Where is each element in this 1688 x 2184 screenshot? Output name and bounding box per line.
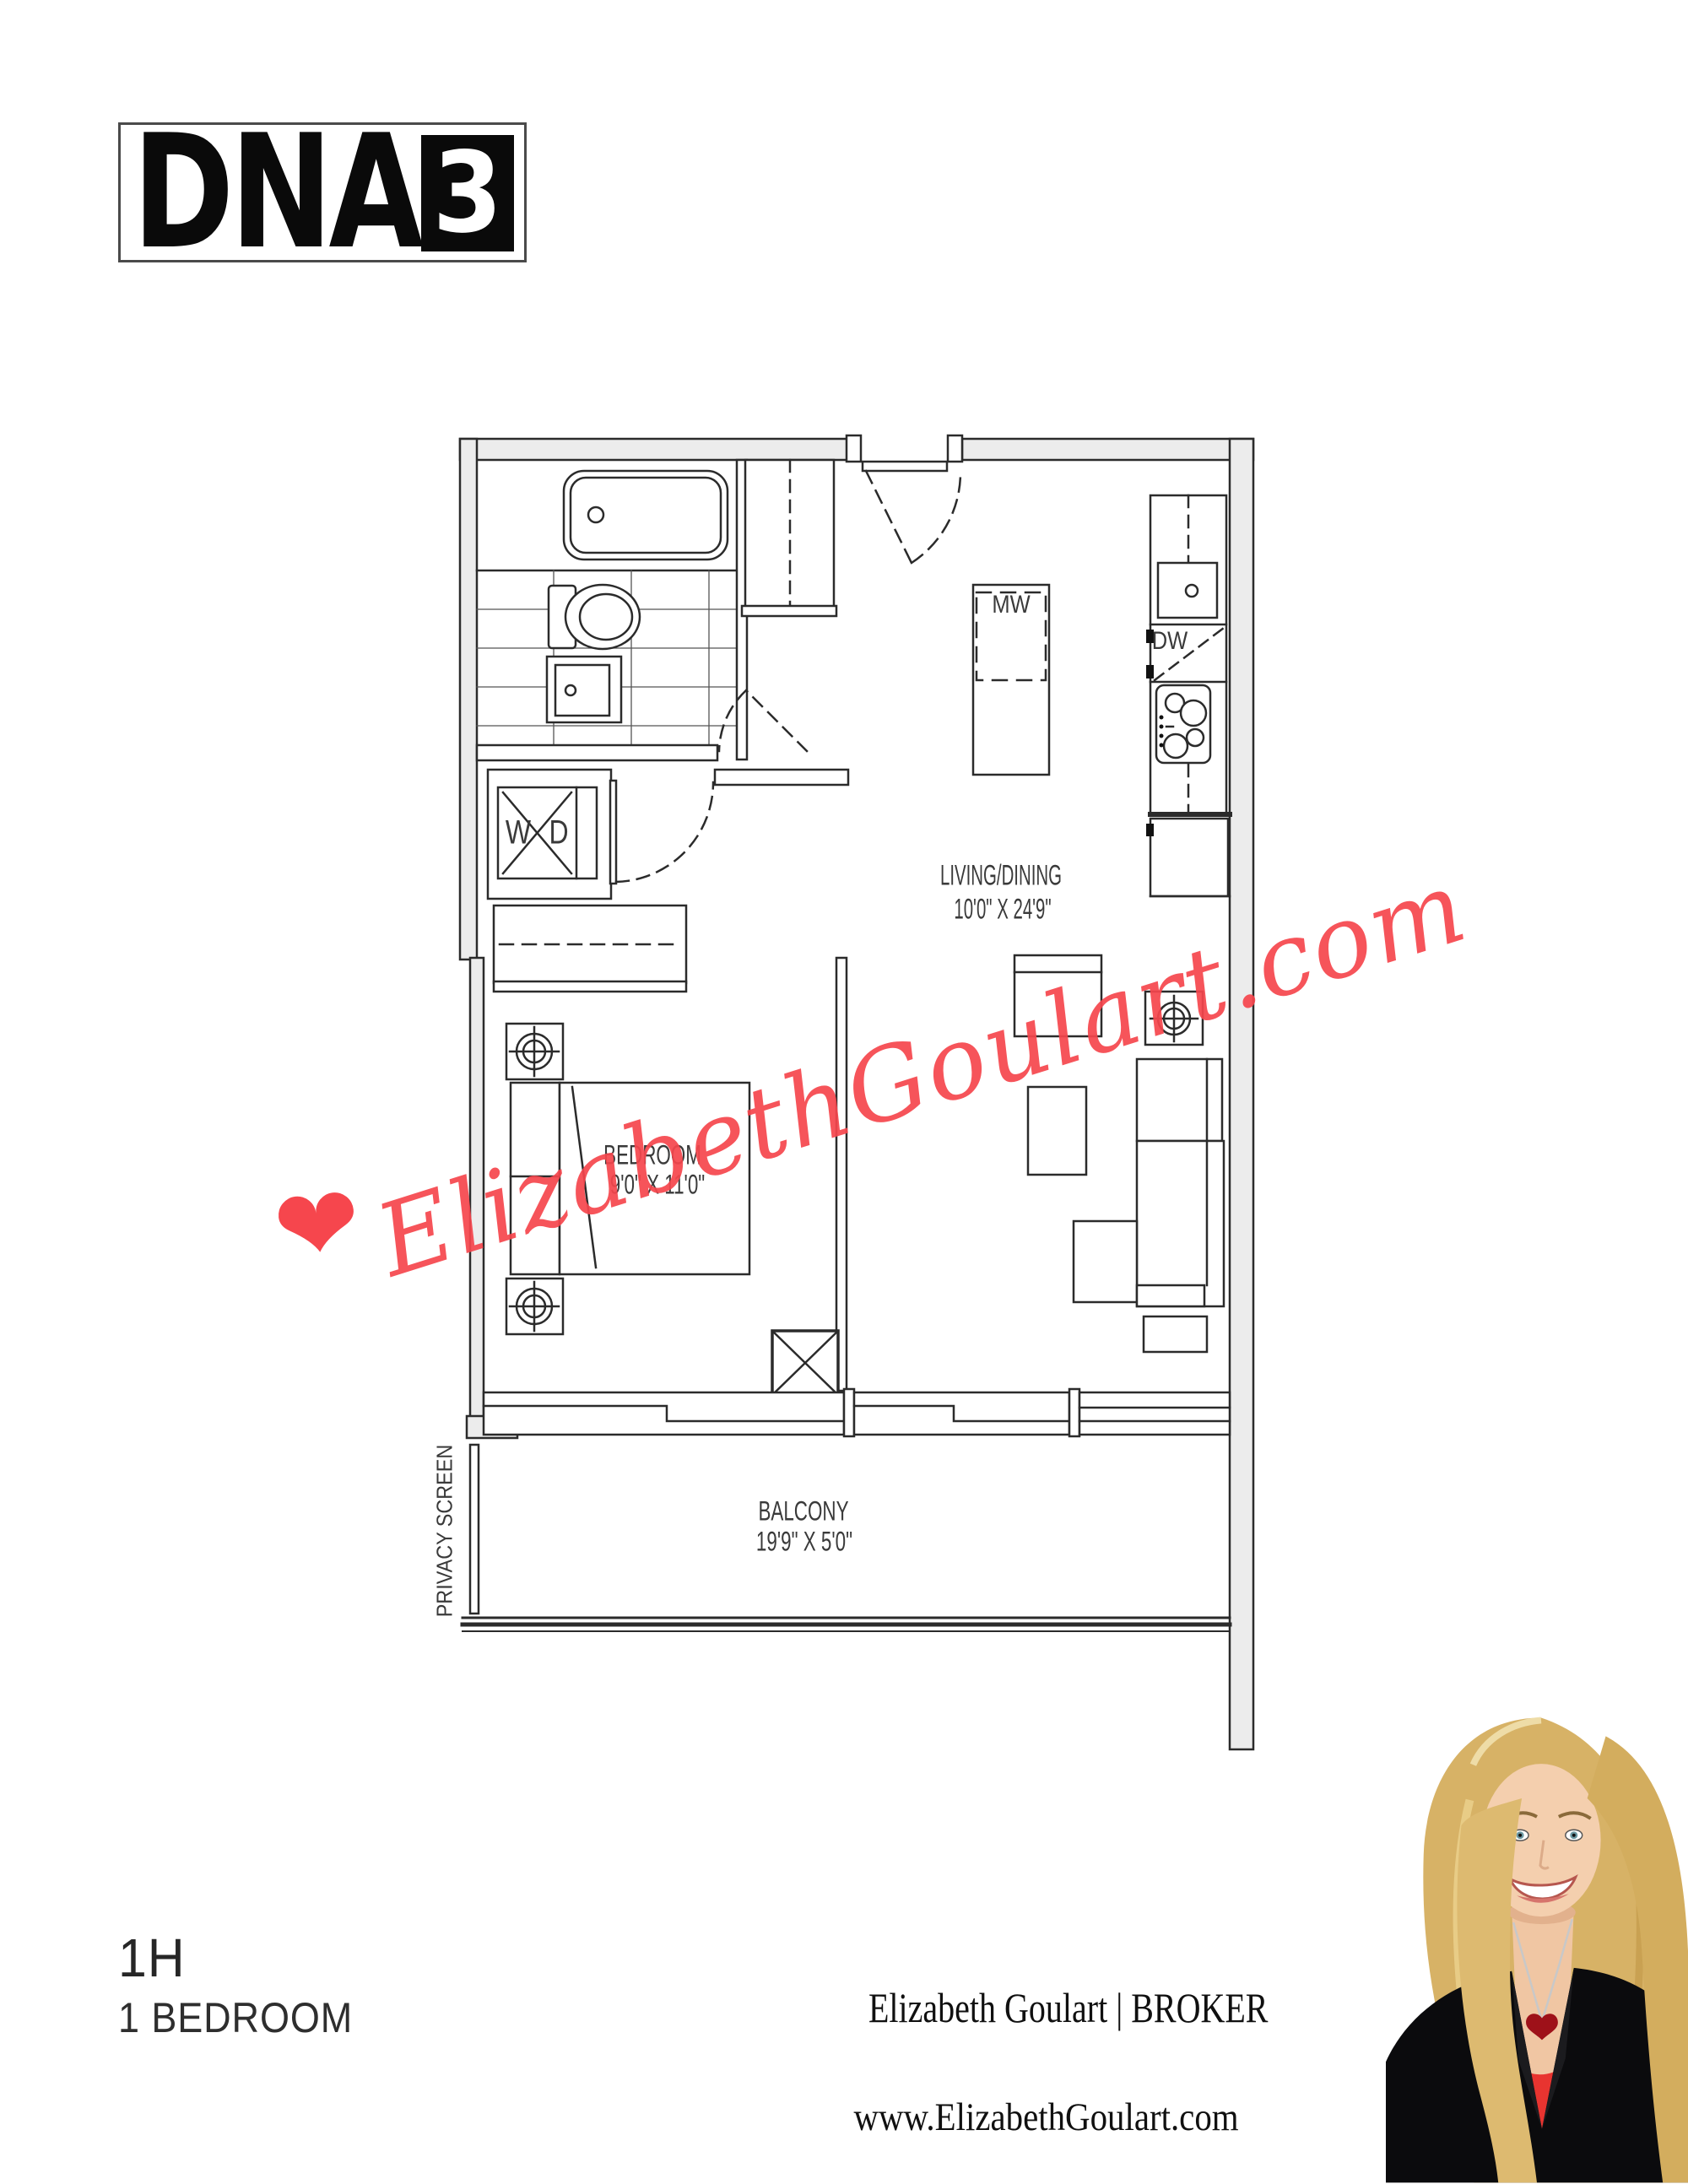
bathroom-vanity	[547, 657, 621, 722]
ottoman	[1144, 1316, 1207, 1352]
agent-website: www.ElizabethGoulart.com	[854, 2095, 1221, 2140]
bedroom-closet	[494, 905, 686, 992]
agent-line-block: Elizabeth Goulart | BROKER	[826, 1983, 1248, 2032]
flyer-page: DNA 3	[0, 0, 1688, 2184]
entry-door	[847, 435, 962, 563]
heart-icon: ❤	[268, 1161, 367, 1289]
kitchen-sink	[1158, 563, 1217, 618]
toilet	[549, 585, 640, 649]
dishwasher-label: DW	[1152, 627, 1188, 656]
living-dining-dimensions: 10'0" X 24'9"	[954, 894, 1051, 927]
cooktop	[1156, 685, 1210, 763]
hall-wall	[715, 770, 848, 785]
sofa	[1074, 1059, 1224, 1306]
balcony-dimensions: 19'9" X 5'0"	[756, 1527, 852, 1558]
agent-name: Elizabeth Goulart | BROKER	[868, 1983, 1206, 2032]
bathroom-door-swing	[719, 690, 807, 751]
bathtub	[564, 471, 728, 560]
balcony-label: BALCONY	[758, 1496, 848, 1527]
living-dining-label: LIVING/DINING	[940, 860, 1062, 893]
unit-type: 1 BEDROOM	[118, 1993, 353, 2042]
portrait-graphic	[1386, 1717, 1688, 2182]
microwave-label: MW	[992, 591, 1030, 619]
column	[772, 1331, 838, 1395]
balcony-railing	[463, 1618, 1230, 1631]
window-band	[484, 1389, 1230, 1436]
eye-right	[1566, 1830, 1582, 1841]
privacy-screen-label: PRIVACY SCREEN	[432, 1445, 458, 1618]
unit-code: 1H	[118, 1927, 186, 1989]
coffee-table	[1028, 1087, 1086, 1175]
refrigerator	[1146, 819, 1228, 896]
entry-closet	[742, 460, 836, 616]
broker-portrait	[1386, 1698, 1688, 2184]
washer-label: W	[506, 814, 531, 852]
dryer-label: D	[549, 814, 568, 852]
nightstand-top	[506, 1024, 563, 1079]
bedroom-wall	[836, 958, 847, 1391]
privacy-screen-bar	[470, 1445, 479, 1614]
nightstand-bottom	[506, 1279, 563, 1334]
